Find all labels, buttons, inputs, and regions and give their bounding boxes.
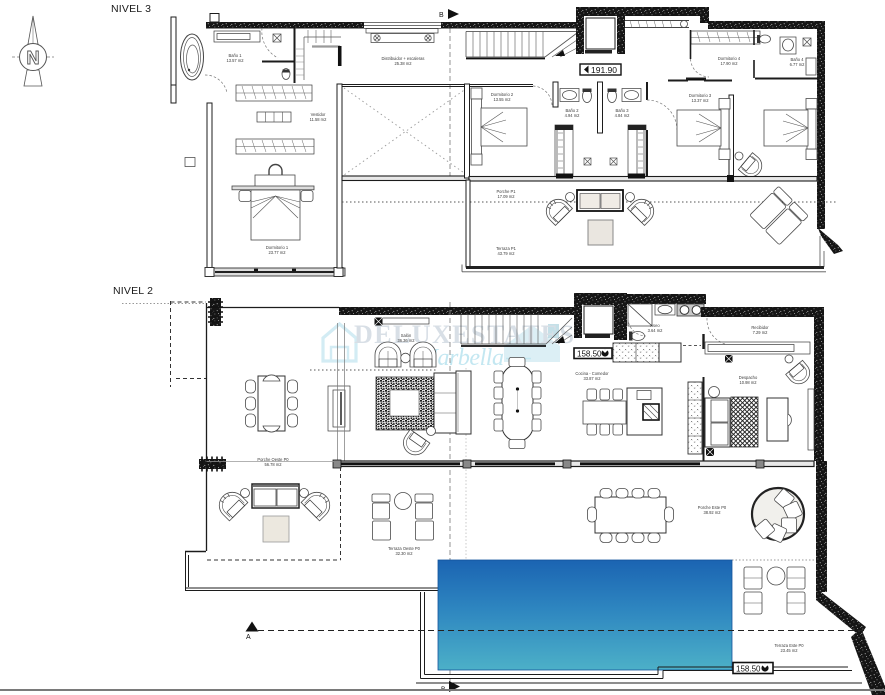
svg-text:17.90 m2: 17.90 m2: [720, 61, 738, 66]
svg-text:13.57 m2: 13.57 m2: [226, 58, 244, 63]
svg-text:6.77 m2: 6.77 m2: [790, 62, 806, 67]
svg-text:N: N: [27, 48, 40, 68]
svg-text:23.45 m2: 23.45 m2: [780, 648, 798, 653]
svg-text:4.84 m2: 4.84 m2: [615, 113, 631, 118]
svg-text:11.58 m2: 11.58 m2: [310, 117, 327, 122]
svg-text:32.30 m2: 32.30 m2: [395, 551, 413, 556]
svg-text:43.79 m2: 43.79 m2: [497, 251, 515, 256]
svg-text:3.64 m2: 3.64 m2: [648, 328, 664, 333]
svg-text:B: B: [439, 12, 444, 19]
svg-text:36.36 m2: 36.36 m2: [397, 338, 415, 343]
svg-text:56.78 m2: 56.78 m2: [264, 462, 282, 467]
svg-text:13.37 m2: 13.37 m2: [691, 98, 709, 103]
svg-text:191.90: 191.90: [591, 65, 617, 75]
svg-text:13.55 m2: 13.55 m2: [493, 97, 511, 102]
svg-text:17.09 m2: 17.09 m2: [497, 194, 515, 199]
svg-text:25.38 m2: 25.38 m2: [394, 61, 412, 66]
svg-text:NIVEL 3: NIVEL 3: [111, 3, 151, 15]
svg-text:38.92 m2: 38.92 m2: [703, 510, 721, 515]
svg-text:158.50: 158.50: [577, 350, 602, 359]
svg-text:7.29 m2: 7.29 m2: [753, 330, 769, 335]
svg-text:33.87 m2: 33.87 m2: [583, 376, 601, 381]
svg-text:A: A: [246, 634, 251, 641]
svg-text:4.94 m2: 4.94 m2: [565, 113, 581, 118]
svg-text:158.50: 158.50: [736, 664, 761, 673]
svg-text:NIVEL 2: NIVEL 2: [113, 285, 153, 297]
svg-text:10.98 m2: 10.98 m2: [739, 380, 757, 385]
svg-text:23.77 m2: 23.77 m2: [268, 250, 286, 255]
